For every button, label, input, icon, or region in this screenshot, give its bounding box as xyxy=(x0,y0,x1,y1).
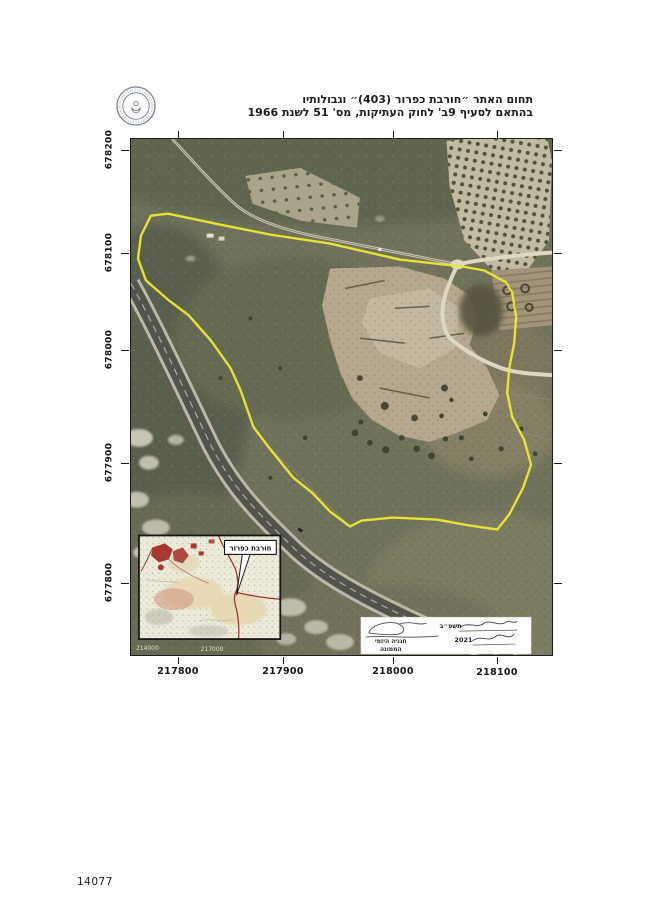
northing-label: 678200 xyxy=(105,128,116,172)
tick-bottom xyxy=(393,657,394,664)
scanned-document-page: תחום האתר ״חורבת כפרור (403)״ וגבולותיו … xyxy=(0,0,654,924)
tick-left xyxy=(121,253,129,254)
page-number: 14077 xyxy=(77,876,113,888)
tick-left xyxy=(121,583,129,584)
easting-label: 217800 xyxy=(148,666,208,677)
gregorian-year-label: 2021 xyxy=(454,636,472,644)
tick-left xyxy=(121,150,129,151)
signer-title: הממונה xyxy=(380,646,402,653)
tick-top xyxy=(393,131,394,138)
northing-label: 678100 xyxy=(105,231,116,275)
hebrew-year-label: תשפ״ב xyxy=(440,622,462,630)
tick-top xyxy=(283,131,284,138)
tick-right xyxy=(554,583,562,584)
inset-grid-label-east: 217000 xyxy=(201,646,224,653)
easting-label: 217900 xyxy=(253,666,313,677)
tick-left xyxy=(121,350,129,351)
signature-box: חנניה היזמי הממונה תשפ״ב 2021 xyxy=(361,617,531,654)
easting-label: 218000 xyxy=(363,666,423,677)
easting-label: 218100 xyxy=(467,667,527,678)
inset-ruins-area xyxy=(154,588,194,610)
inset-grid-label-west: 214000 xyxy=(136,645,159,652)
tick-right xyxy=(554,150,562,151)
title-line-1: תחום האתר ״חורבת כפרור (403)״ וגבולותיו xyxy=(203,93,533,106)
aerial-map-frame: חורבת כפרור 214000 217000 חנניה היזמי המ… xyxy=(130,138,553,656)
tick-bottom xyxy=(178,657,179,664)
tick-right xyxy=(554,350,562,351)
tick-left xyxy=(121,463,129,464)
dark-vegetation-patch xyxy=(459,284,503,336)
northing-label: 677900 xyxy=(105,441,116,485)
signer-name: חנניה היזמי xyxy=(375,638,407,645)
northing-label: 678000 xyxy=(105,328,116,372)
document-title: תחום האתר ״חורבת כפרור (403)״ וגבולותיו … xyxy=(203,93,533,119)
title-line-2: בהתאם לסעיף 9ב' לחוק העתיקות, מס' 51 לשנ… xyxy=(203,106,533,119)
tick-bottom xyxy=(497,657,498,664)
inset-location-map: חורבת כפרור xyxy=(139,535,280,639)
tick-top xyxy=(178,131,179,138)
northing-label: 677800 xyxy=(105,561,116,605)
callout-label: חורבת כפרור xyxy=(229,544,271,552)
antiquities-authority-seal-icon xyxy=(114,84,158,128)
tick-top xyxy=(497,131,498,138)
tick-right xyxy=(554,253,562,254)
aerial-photo: חורבת כפרור 214000 217000 חנניה היזמי המ… xyxy=(131,139,552,655)
tick-bottom xyxy=(283,657,284,664)
tick-right xyxy=(554,463,562,464)
